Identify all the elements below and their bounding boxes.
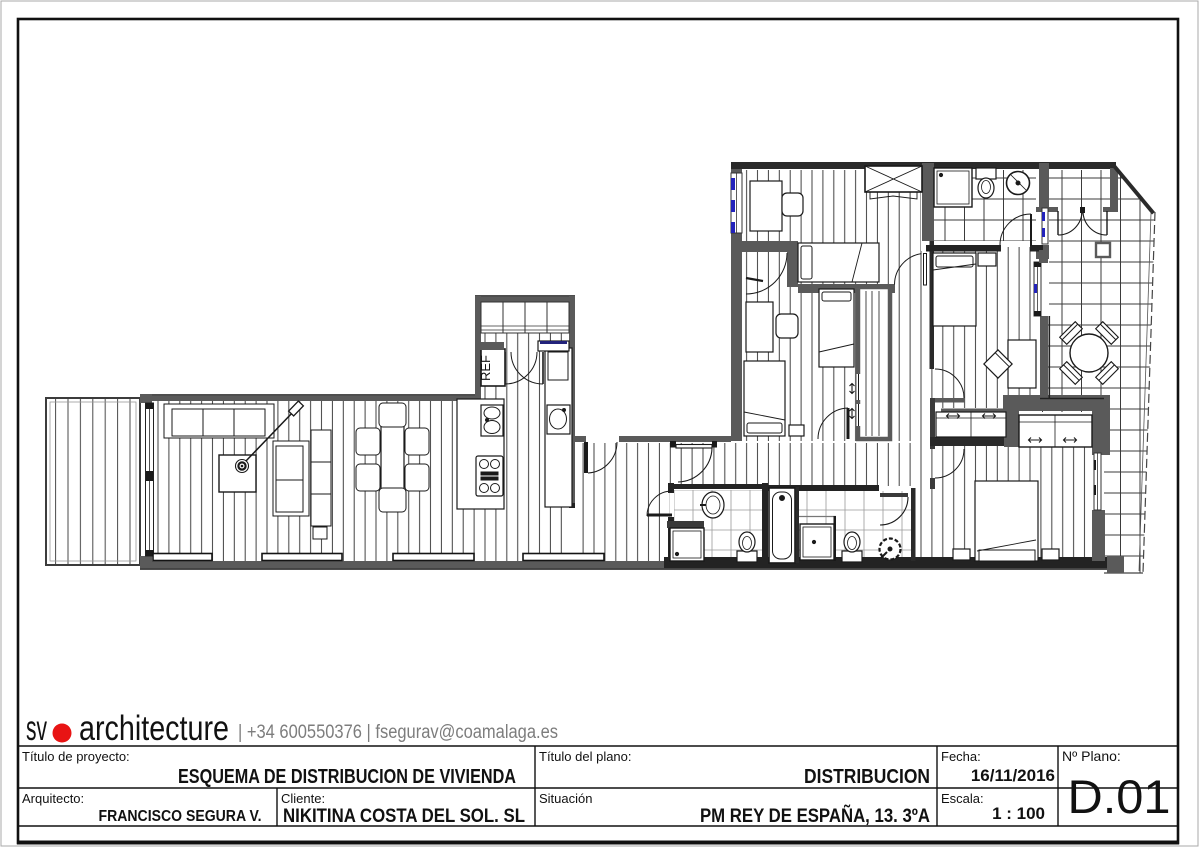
svg-text:Cliente:: Cliente: — [281, 791, 325, 806]
svg-text:Fecha:: Fecha: — [941, 749, 981, 764]
svg-text:| +34 600550376 | fsegurav@coa: | +34 600550376 | fsegurav@coamalaga.es — [238, 722, 558, 743]
svg-text:DISTRIBUCION: DISTRIBUCION — [804, 766, 930, 788]
svg-text:Situación: Situación — [539, 791, 592, 806]
svg-text:Título del plano:: Título del plano: — [539, 749, 632, 764]
svg-text:REF: REF — [478, 355, 493, 381]
svg-text:Arquitecto:: Arquitecto: — [22, 791, 84, 806]
svg-text:Título de proyecto:: Título de proyecto: — [22, 749, 130, 764]
svg-text:Nº Plano:: Nº Plano: — [1062, 748, 1121, 764]
svg-text:sv: sv — [26, 709, 47, 748]
svg-text:Escala:: Escala: — [941, 791, 984, 806]
svg-text:D.01: D.01 — [1068, 770, 1171, 823]
svg-text:16/11/2016: 16/11/2016 — [971, 766, 1055, 785]
svg-text:architecture: architecture — [79, 709, 229, 748]
svg-text:PM REY DE ESPAÑA, 13. 3ºA: PM REY DE ESPAÑA, 13. 3ºA — [700, 805, 930, 827]
svg-text:NIKITINA COSTA DEL SOL. SL: NIKITINA COSTA DEL SOL. SL — [283, 806, 525, 827]
svg-text:FRANCISCO SEGURA V.: FRANCISCO SEGURA V. — [99, 808, 262, 825]
svg-text:1 : 100: 1 : 100 — [992, 804, 1045, 823]
svg-text:ESQUEMA DE DISTRIBUCION DE VIV: ESQUEMA DE DISTRIBUCION DE VIVIENDA — [178, 766, 516, 788]
